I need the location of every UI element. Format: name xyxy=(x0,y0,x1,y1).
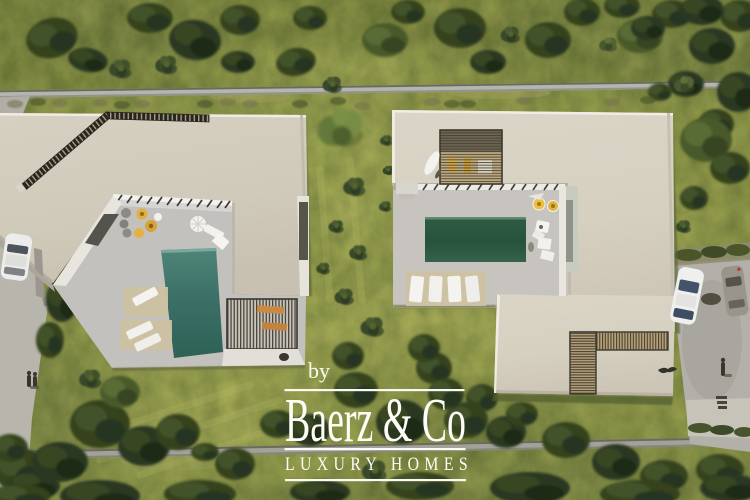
svg-text:by: by xyxy=(308,358,330,383)
svg-text:Baerz & Co: Baerz & Co xyxy=(285,387,466,455)
svg-text:LUXURY HOMES: LUXURY HOMES xyxy=(285,454,473,475)
